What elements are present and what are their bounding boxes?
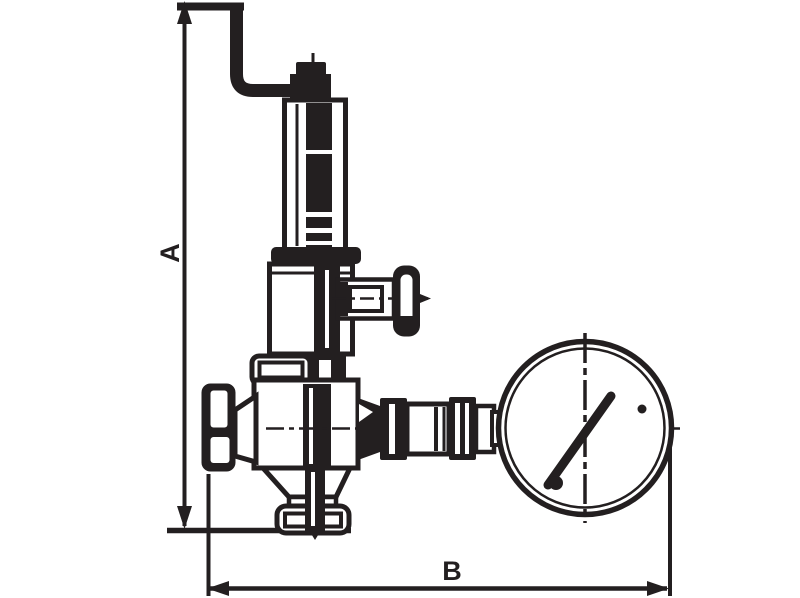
valve-body-stem-highlight xyxy=(309,388,313,464)
outlet-stem-highlight xyxy=(311,472,315,526)
valve-drawing-svg: A B xyxy=(0,0,800,598)
dimension-a-arrow-down-icon xyxy=(177,506,192,529)
outlet-section xyxy=(263,468,350,540)
union-nut-right-slot xyxy=(319,360,331,378)
fitting-hex-nut-2-slot xyxy=(455,403,460,454)
valve-body xyxy=(235,380,358,468)
screw-thread-notch xyxy=(306,228,332,233)
t-handle-foot xyxy=(396,316,414,330)
spring-housing-flange xyxy=(271,247,361,264)
dimension-b-label: B xyxy=(442,556,462,586)
adjusting-screw-rod xyxy=(306,103,332,248)
bonnet-stem-highlight xyxy=(325,270,329,348)
gauge-dial-screw-dot xyxy=(638,405,647,414)
sensing-pipe-elbow xyxy=(237,7,297,91)
fitting-hex-nut-1-slot xyxy=(389,404,395,454)
spring-housing xyxy=(271,100,361,264)
screw-thread-notch xyxy=(306,150,332,154)
dimension-b-arrow-right-icon xyxy=(647,581,669,596)
inlet-handwheel xyxy=(202,384,236,472)
handwheel-slot-bottom xyxy=(211,437,230,463)
union-nut-face xyxy=(260,363,303,378)
fitting-hex-nut-2-slot xyxy=(465,403,469,454)
cap-top-step xyxy=(296,62,326,76)
pressure-gauge xyxy=(499,333,672,523)
screw-thread-notch xyxy=(306,241,332,245)
handwheel-slot-top xyxy=(211,391,228,428)
dimension-a-label: A xyxy=(155,243,185,263)
gauge-needle-hub-dot xyxy=(549,476,563,490)
side-valve-stem-arrow-icon xyxy=(420,294,431,303)
technical-drawing-valve-with-gauge: A B xyxy=(0,0,800,598)
valve-body-stem-column xyxy=(303,384,331,468)
spring-housing-cap xyxy=(290,53,331,103)
fitting-hex-nut-2 xyxy=(449,397,476,460)
screw-thread-notch xyxy=(306,212,332,217)
sensing-pipe xyxy=(237,7,297,91)
inlet-cone xyxy=(235,396,256,462)
